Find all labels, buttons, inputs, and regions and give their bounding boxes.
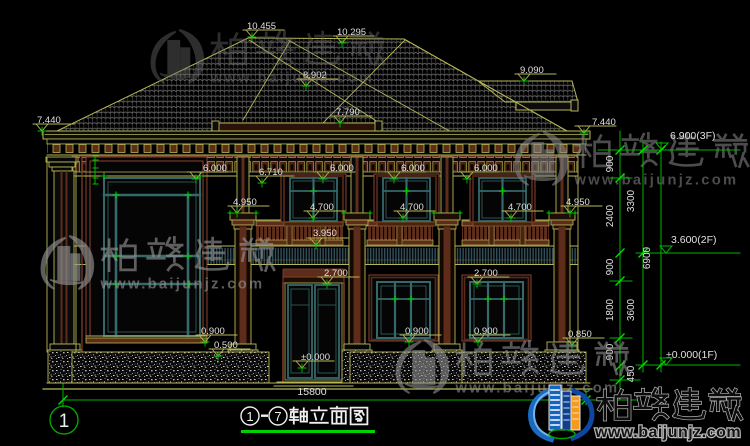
svg-text:1: 1 bbox=[246, 409, 253, 424]
svg-text:3300: 3300 bbox=[626, 189, 637, 212]
svg-text:900: 900 bbox=[605, 155, 616, 172]
svg-text:15800: 15800 bbox=[297, 386, 326, 398]
svg-text:2400: 2400 bbox=[605, 204, 616, 227]
svg-text:6900: 6900 bbox=[642, 246, 653, 269]
svg-text:www.baijunjz.com: www.baijunjz.com bbox=[594, 424, 741, 441]
svg-text:±0.000(1F): ±0.000(1F) bbox=[666, 349, 717, 361]
svg-text:3600: 3600 bbox=[626, 298, 637, 321]
svg-text:6.900(3F): 6.900(3F) bbox=[670, 130, 716, 142]
svg-text:3.950: 3.950 bbox=[313, 228, 337, 239]
svg-text:7: 7 bbox=[274, 409, 281, 424]
svg-text:1: 1 bbox=[59, 411, 70, 432]
svg-text:1800: 1800 bbox=[605, 298, 616, 321]
svg-text:3.600(2F): 3.600(2F) bbox=[671, 234, 717, 246]
svg-text:900: 900 bbox=[605, 258, 616, 275]
